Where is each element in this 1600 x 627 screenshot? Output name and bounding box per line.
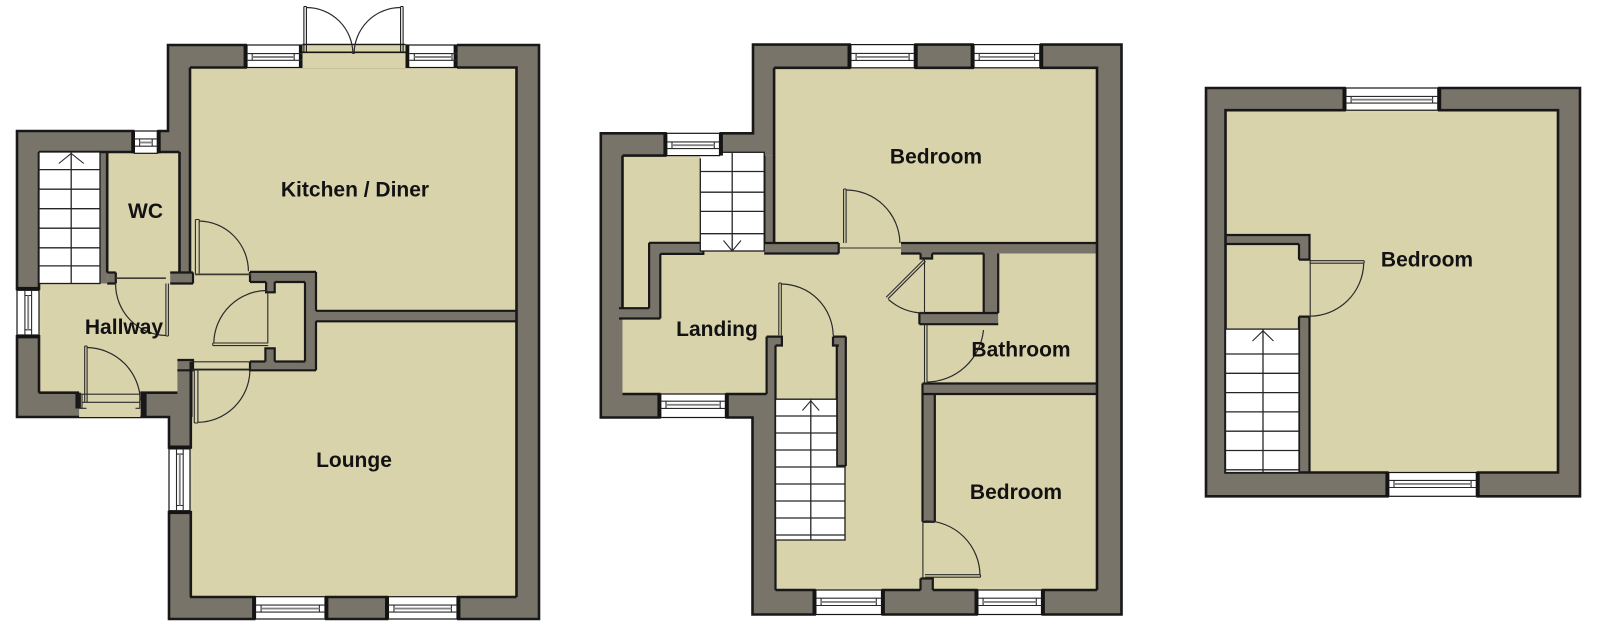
svg-text:Kitchen / Diner: Kitchen / Diner xyxy=(281,179,429,202)
svg-text:Bedroom: Bedroom xyxy=(890,146,982,169)
svg-text:Bedroom: Bedroom xyxy=(1381,249,1473,272)
svg-text:Lounge: Lounge xyxy=(316,449,392,472)
svg-text:Landing: Landing xyxy=(676,318,758,341)
svg-text:Hallway: Hallway xyxy=(85,316,164,339)
svg-text:Bedroom: Bedroom xyxy=(970,481,1062,504)
svg-text:Bathroom: Bathroom xyxy=(971,339,1070,362)
svg-text:WC: WC xyxy=(128,200,163,223)
